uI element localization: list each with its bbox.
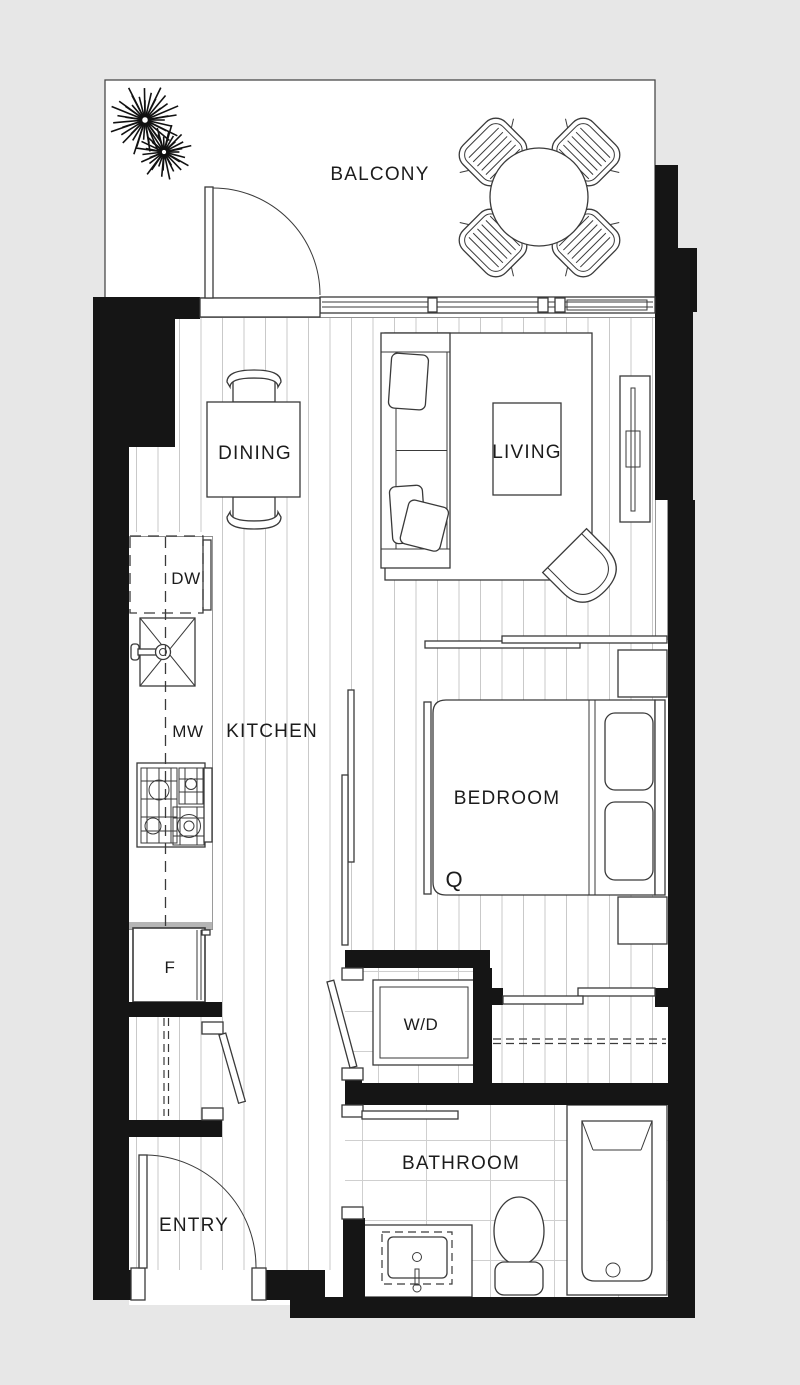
closet-sliding-door <box>578 988 655 996</box>
balcony-door-threshold <box>200 298 320 317</box>
media-console-icon <box>620 376 650 522</box>
bathtub-icon <box>567 1105 667 1295</box>
nightstand-icon <box>618 650 667 697</box>
appliance-label-washer-dryer: W/D <box>404 1015 439 1034</box>
bedroom-sliding-panel <box>348 690 354 862</box>
bathroom-door <box>362 1111 458 1119</box>
appliance-label-microwave: MW <box>172 722 203 741</box>
closet-sliding-door <box>503 996 583 1004</box>
balcony-area <box>105 80 655 298</box>
appliance-label-dishwasher: DW <box>171 569 201 588</box>
room-label-entry: ENTRY <box>159 1215 229 1236</box>
dining-chair-icon <box>227 370 281 402</box>
floor-plan-page: BALCONY DINING LIVING KITCHEN BEDROOM BA… <box>0 0 800 1385</box>
floor-plan-svg: BALCONY DINING LIVING KITCHEN BEDROOM BA… <box>0 0 800 1385</box>
bedroom-sliding-panel <box>502 636 667 643</box>
room-label-dining: DINING <box>218 443 292 464</box>
room-label-kitchen: KITCHEN <box>226 721 318 742</box>
stove-icon <box>137 763 212 847</box>
bed-size-label: Q <box>445 867 462 892</box>
sofa-icon <box>381 333 450 568</box>
appliance-label-fridge: F <box>165 958 176 977</box>
vanity-sink-icon <box>363 1225 472 1297</box>
dishwasher-door <box>203 540 211 610</box>
room-label-living: LIVING <box>492 442 562 463</box>
nightstand-icon <box>618 897 667 944</box>
sink-icon <box>131 618 195 686</box>
room-label-balcony: BALCONY <box>330 164 429 185</box>
bedroom-sliding-panel <box>342 775 348 945</box>
room-label-bedroom: BEDROOM <box>454 788 561 809</box>
toilet-icon <box>494 1197 544 1295</box>
room-label-bathroom: BATHROOM <box>402 1153 520 1174</box>
patio-table-icon <box>490 148 588 246</box>
dining-chair-icon <box>227 497 281 529</box>
